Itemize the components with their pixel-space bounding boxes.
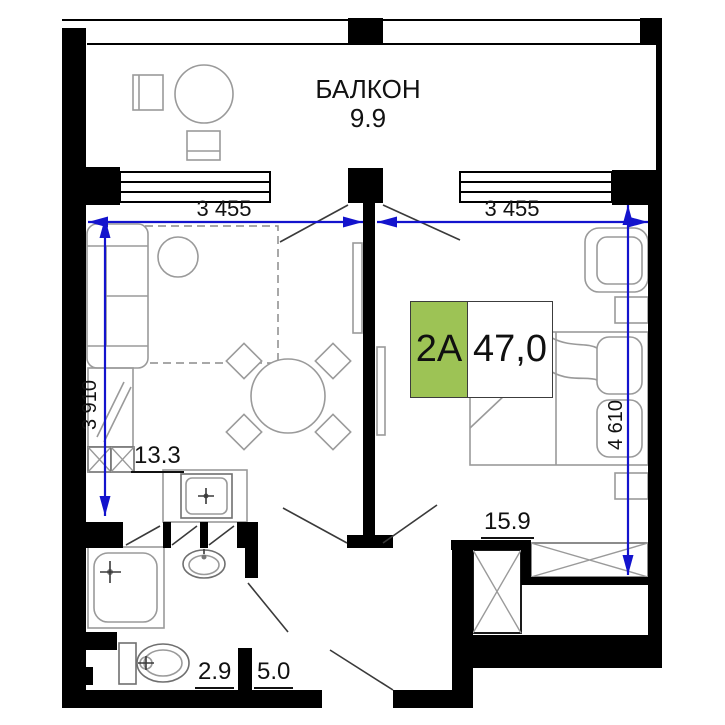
armchair (585, 228, 648, 292)
shower (88, 547, 164, 628)
balcony-area: 9.9 (278, 103, 458, 134)
washbasin (183, 549, 225, 578)
area-bathroom: 2.9 (195, 658, 234, 689)
dimension-top-left: 3 455 (150, 196, 298, 222)
area-hallway: 5.0 (254, 658, 293, 689)
balcony-furniture (133, 65, 233, 160)
stove (88, 447, 134, 472)
area-kitchen-living: 13.3 (131, 442, 184, 473)
unit-badge: 2A 47,0 (410, 301, 553, 398)
dimension-left-side: 3 910 (79, 330, 102, 430)
floor-plan: .wall{fill:#000;} .thin{stroke:#000;stro… (0, 0, 725, 725)
unit-type-label: 2A (411, 302, 468, 397)
pouf (158, 237, 198, 277)
duct-shaft (473, 550, 521, 633)
dimension-top-right: 3 455 (438, 196, 586, 222)
dimension-right-side: 4 610 (605, 352, 628, 450)
balcony-label: БАЛКОН (278, 74, 458, 105)
toilet (119, 643, 189, 684)
kitchen-sink (181, 474, 232, 518)
dining-set (226, 343, 350, 449)
unit-area-label: 47,0 (468, 302, 552, 397)
area-bedroom: 15.9 (481, 508, 534, 539)
